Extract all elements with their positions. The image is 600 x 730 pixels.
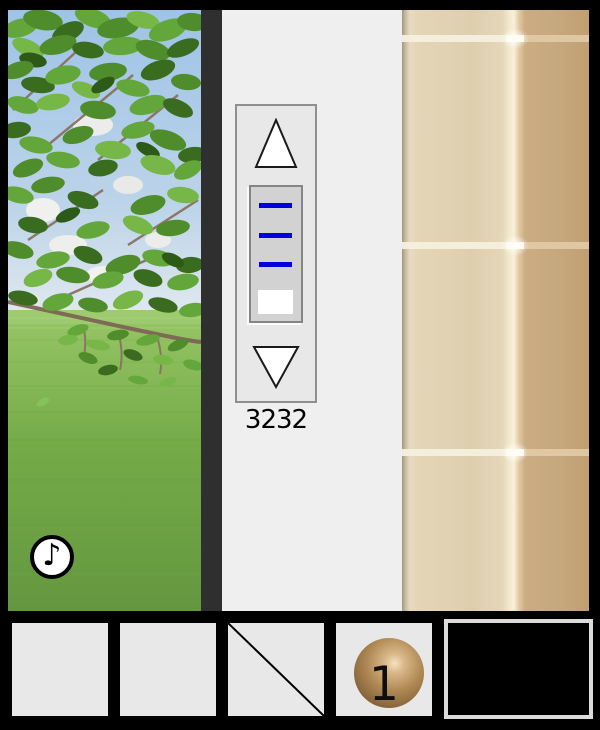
slider-handle[interactable] — [258, 290, 293, 314]
item-slot-2[interactable] — [120, 623, 216, 716]
music-note-icon: ♪ — [42, 541, 61, 571]
counter-readout: 3232 — [235, 405, 317, 435]
slider-mark-2 — [259, 233, 292, 238]
scene-view[interactable]: ♪ — [8, 10, 201, 611]
tiled-wall-view[interactable] — [402, 10, 589, 611]
item-detail-box[interactable] — [444, 619, 593, 719]
down-triangle-icon — [252, 345, 300, 389]
diagonal-line-icon — [228, 623, 324, 716]
item-slot-4-ball[interactable]: 1 — [336, 623, 432, 716]
up-triangle-icon — [254, 118, 298, 169]
lever-slider-track[interactable] — [249, 185, 303, 323]
ball-count-label: 1 — [336, 661, 432, 708]
lever-up-button[interactable] — [237, 118, 315, 169]
tile-grout-line — [402, 449, 589, 456]
outdoor-scene-art — [8, 10, 201, 611]
lever-control-box — [235, 104, 317, 403]
item-slot-1[interactable] — [12, 623, 108, 716]
lever-down-button[interactable] — [237, 345, 315, 389]
slider-mark-1 — [259, 203, 292, 208]
control-wall-panel: 3232 — [222, 10, 402, 611]
game-screen: ♪ 3232 — [0, 0, 600, 730]
slider-mark-3 — [259, 262, 292, 267]
music-toggle-button[interactable]: ♪ — [30, 535, 74, 579]
item-slot-3-crossed[interactable] — [228, 623, 324, 716]
tile-grout-line — [402, 35, 589, 42]
tile-grout-line — [402, 242, 589, 249]
door-edge-strip — [201, 10, 222, 611]
